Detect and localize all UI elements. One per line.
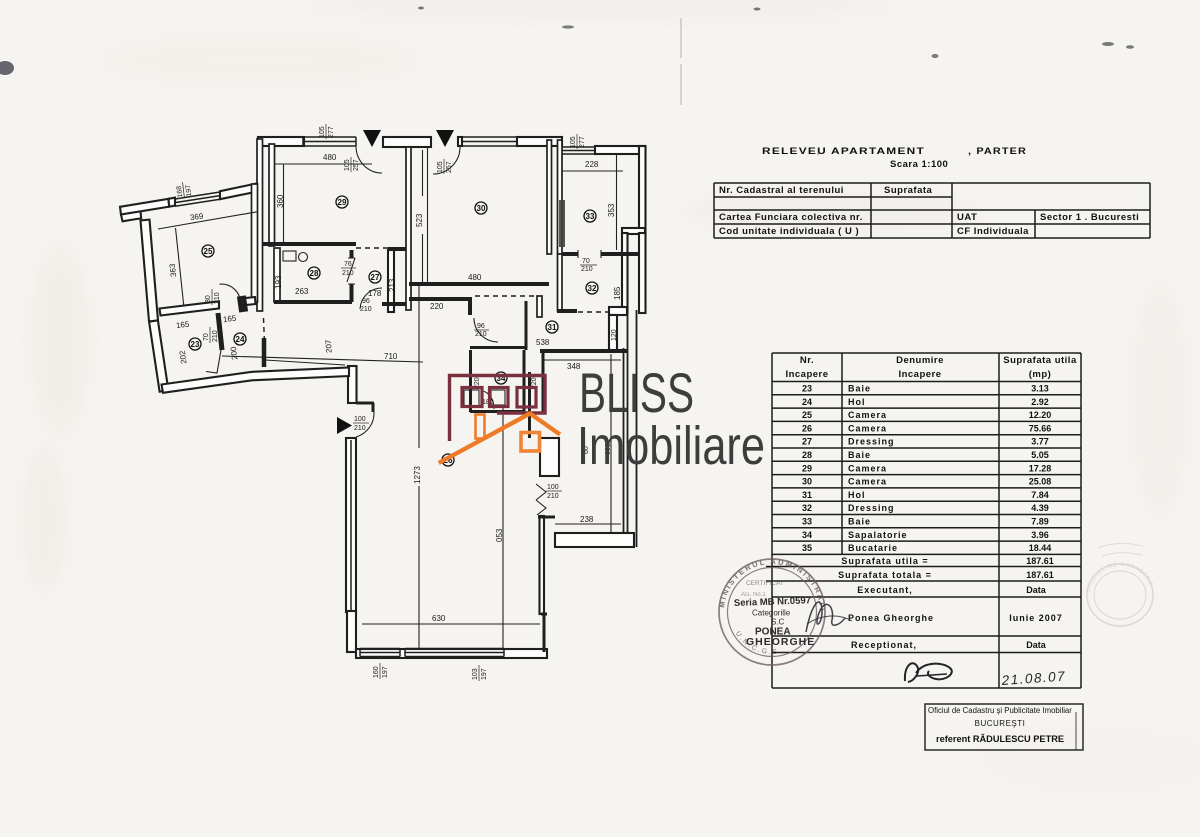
svg-text:228: 228 (585, 160, 599, 169)
svg-text:480: 480 (323, 153, 337, 162)
svg-text:25: 25 (204, 247, 213, 256)
svg-text:213: 213 (388, 278, 397, 292)
svg-text:257: 257 (446, 161, 453, 173)
svg-text:Executant,: Executant, (857, 585, 913, 595)
svg-text:Baie: Baie (848, 517, 871, 527)
svg-text:33: 33 (586, 212, 595, 221)
svg-text:3.13: 3.13 (1031, 384, 1049, 394)
svg-text:165: 165 (175, 320, 190, 331)
svg-text:165: 165 (222, 314, 237, 325)
svg-text:76: 76 (344, 261, 352, 268)
svg-text:710: 710 (384, 352, 398, 361)
svg-text:210: 210 (354, 425, 366, 432)
svg-text:210: 210 (360, 306, 372, 313)
svg-text:100: 100 (354, 416, 366, 423)
svg-text:27: 27 (371, 273, 380, 282)
svg-text:185: 185 (613, 286, 622, 300)
svg-text:25.08: 25.08 (1029, 477, 1052, 487)
svg-text:Suprafata utila =: Suprafata utila = (841, 556, 928, 566)
svg-text:Data: Data (1026, 640, 1047, 650)
svg-text:197: 197 (382, 666, 389, 678)
svg-text:238: 238 (580, 515, 594, 524)
svg-text:187.61: 187.61 (1026, 570, 1054, 580)
svg-text:103: 103 (472, 668, 479, 680)
svg-text:24: 24 (236, 335, 245, 344)
svg-text:202: 202 (178, 350, 189, 365)
svg-text:28: 28 (802, 450, 812, 460)
svg-text:Data: Data (1026, 585, 1047, 595)
svg-text:80: 80 (205, 295, 212, 303)
svg-text:Bucatarie: Bucatarie (848, 543, 898, 553)
svg-text:BUCUREŞTI: BUCUREŞTI (975, 719, 1026, 728)
svg-text:Camera: Camera (848, 463, 887, 473)
svg-text:27: 27 (802, 437, 812, 447)
svg-text:220: 220 (430, 302, 444, 311)
svg-text:29: 29 (338, 198, 347, 207)
svg-text:630: 630 (432, 614, 446, 623)
svg-text:25: 25 (802, 410, 812, 420)
svg-text:Hol: Hol (848, 490, 866, 500)
svg-text:7.84: 7.84 (1031, 490, 1049, 500)
svg-text:5.05: 5.05 (1031, 450, 1049, 460)
svg-text:210: 210 (212, 330, 219, 342)
svg-text:Sapalatorie: Sapalatorie (848, 530, 908, 540)
svg-text:3.77: 3.77 (1031, 437, 1049, 447)
svg-text:3.96: 3.96 (1031, 530, 1049, 540)
svg-text:Iunie 2007: Iunie 2007 (1009, 613, 1063, 623)
svg-text:96: 96 (362, 298, 370, 305)
svg-text:538: 538 (536, 338, 550, 347)
svg-text:210: 210 (581, 266, 593, 273)
svg-text:Suprafata utila: Suprafata utila (1003, 355, 1077, 366)
svg-text:369: 369 (189, 212, 204, 223)
svg-text:353: 353 (607, 203, 616, 217)
svg-text:24: 24 (802, 397, 812, 407)
svg-text:053: 053 (495, 528, 504, 542)
svg-text:Dressing: Dressing (848, 503, 895, 513)
svg-text:23: 23 (191, 340, 200, 349)
svg-text:263: 263 (295, 287, 309, 296)
svg-text:187.61: 187.61 (1026, 556, 1054, 566)
svg-text:Baie: Baie (848, 384, 871, 394)
svg-text:210: 210 (214, 292, 221, 304)
svg-text:210: 210 (475, 331, 487, 338)
svg-text:Ponea Gheorghe: Ponea Gheorghe (848, 613, 934, 623)
svg-text:Suprafata: Suprafata (884, 185, 933, 196)
svg-text:32: 32 (802, 503, 812, 513)
svg-text:197: 197 (185, 184, 193, 197)
svg-text:Suprafata totala =: Suprafata totala = (838, 570, 932, 580)
svg-text:1273: 1273 (413, 466, 422, 484)
svg-text:CERTIFICAT: CERTIFICAT (746, 580, 784, 587)
svg-text:193: 193 (274, 275, 283, 289)
svg-text:Camera: Camera (848, 410, 887, 420)
svg-text:197: 197 (481, 668, 488, 680)
svg-text:32: 32 (588, 284, 597, 293)
svg-text:Incapere: Incapere (898, 369, 941, 380)
svg-text:523: 523 (415, 213, 424, 227)
svg-text:7.89: 7.89 (1031, 517, 1049, 527)
svg-text:70: 70 (582, 258, 590, 265)
svg-text:277: 277 (328, 126, 335, 138)
svg-text:Cod unitate individuala ( U ): Cod unitate individuala ( U ) (719, 226, 859, 237)
svg-text:363: 363 (168, 263, 178, 278)
svg-text:105: 105 (437, 161, 444, 173)
svg-text:100: 100 (547, 484, 559, 491)
svg-text:GHEORGHE: GHEORGHE (746, 636, 815, 648)
svg-text:75.66: 75.66 (1029, 423, 1052, 433)
svg-text:70: 70 (203, 333, 210, 341)
svg-text:Camera: Camera (848, 423, 887, 433)
svg-text:35: 35 (802, 543, 812, 553)
svg-text:30: 30 (477, 204, 486, 213)
svg-text:360: 360 (276, 194, 285, 208)
svg-text:34: 34 (802, 530, 812, 540)
svg-text:207: 207 (324, 339, 334, 353)
svg-text:(mp): (mp) (1029, 369, 1052, 380)
svg-text:257: 257 (353, 159, 360, 171)
svg-text:RELEVEU APARTAMENT: RELEVEU APARTAMENT (762, 146, 925, 157)
svg-text:210: 210 (342, 270, 354, 277)
svg-text:ʼ: ʼ (817, 152, 819, 162)
svg-text:Nr. Cadastral al terenului: Nr. Cadastral al terenului (719, 185, 844, 196)
svg-text:Imobiliare: Imobiliare (577, 416, 765, 476)
svg-text:277: 277 (579, 136, 586, 148)
svg-text:4.39: 4.39 (1031, 503, 1049, 513)
svg-text:S.C: S.C (771, 618, 785, 627)
svg-text:105: 105 (570, 136, 577, 148)
svg-text:200: 200 (229, 346, 240, 361)
svg-text:Hol: Hol (848, 397, 866, 407)
svg-text:105: 105 (344, 159, 351, 171)
svg-text:120: 120 (611, 329, 618, 341)
svg-text:2.92: 2.92 (1031, 397, 1049, 407)
svg-text:Nr.: Nr. (800, 355, 814, 366)
svg-text:18.44: 18.44 (1029, 543, 1052, 553)
svg-text:160: 160 (373, 666, 380, 678)
svg-text:Camera: Camera (848, 477, 887, 487)
svg-text:96: 96 (477, 323, 485, 330)
svg-text:480: 480 (468, 273, 482, 282)
svg-text:23: 23 (802, 384, 812, 394)
svg-text:CF Individuala: CF Individuala (957, 226, 1029, 237)
svg-text:Sector 1 . Bucuresti: Sector 1 . Bucuresti (1040, 212, 1139, 223)
svg-text:31: 31 (802, 490, 812, 500)
svg-text:Incapere: Incapere (785, 369, 828, 380)
svg-text:Denumire: Denumire (896, 355, 944, 366)
svg-text:Categorille: Categorille (752, 609, 791, 618)
svg-text:31: 31 (548, 323, 557, 332)
svg-text:Scara 1:100: Scara 1:100 (890, 159, 948, 170)
svg-text:33: 33 (802, 517, 812, 527)
svg-text:29: 29 (802, 463, 812, 473)
svg-text:Baie: Baie (848, 450, 871, 460)
svg-text:210: 210 (547, 493, 559, 500)
svg-text:, PARTER: , PARTER (968, 146, 1027, 157)
svg-text:UAT: UAT (957, 212, 977, 223)
svg-text:referent RĂDULESCU PETRE: referent RĂDULESCU PETRE (936, 734, 1064, 745)
svg-text:Receptionat,: Receptionat, (851, 640, 917, 650)
svg-text:28: 28 (310, 269, 319, 278)
svg-text:Cartea Funciara colectiva nr.: Cartea Funciara colectiva nr. (719, 212, 863, 223)
svg-text:12.20: 12.20 (1029, 410, 1052, 420)
svg-text:30: 30 (802, 477, 812, 487)
svg-text:26: 26 (802, 423, 812, 433)
svg-text:Oficiul de Cadastru şi Publici: Oficiul de Cadastru şi Publicitate Imobi… (928, 706, 1072, 715)
svg-text:178: 178 (368, 289, 382, 298)
svg-text:17.28: 17.28 (1029, 463, 1052, 473)
svg-text:BLISS: BLISS (579, 361, 694, 424)
svg-text:105: 105 (319, 126, 326, 138)
svg-text:Dressing: Dressing (848, 437, 895, 447)
